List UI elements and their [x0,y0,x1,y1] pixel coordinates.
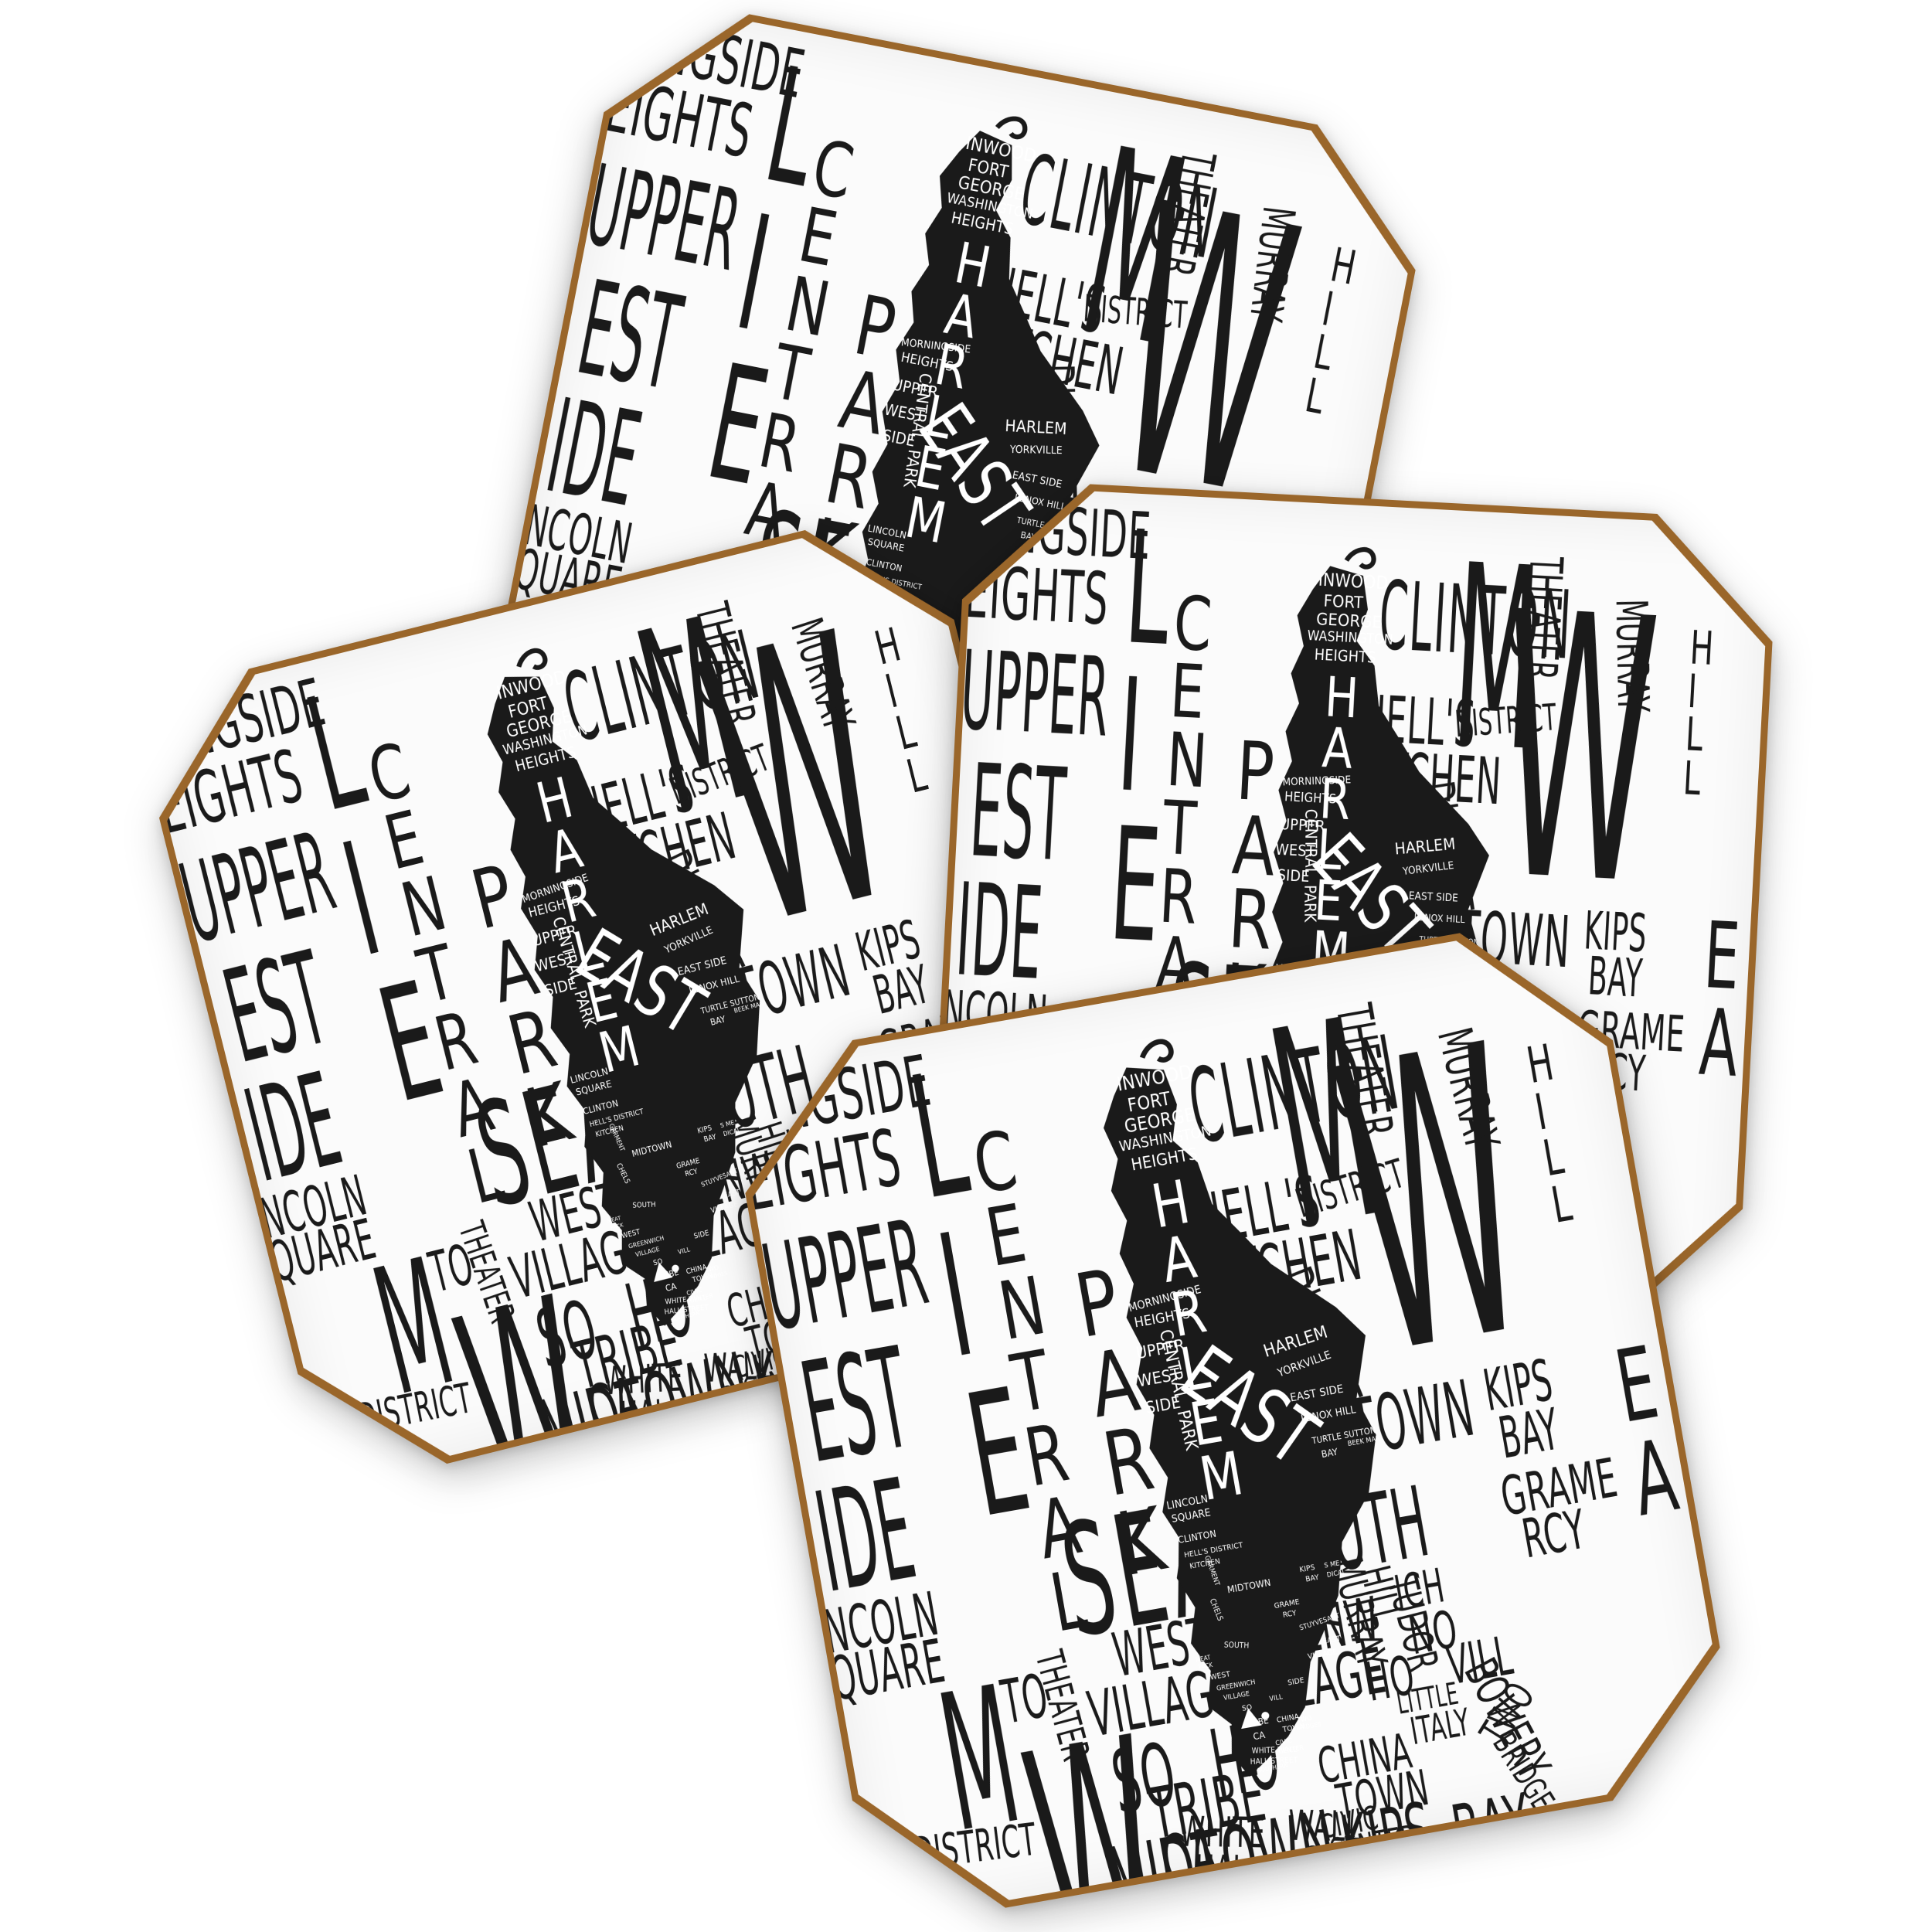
island-label: FORT [1323,593,1363,611]
island-label: BAY [1321,1447,1338,1459]
island-label: EAST SIDE [1409,891,1459,904]
neighborhood-label: MENT [921,1870,976,1923]
island-label: SOUTH [1224,1642,1250,1651]
neighborhood-label: SOUTHERN [1221,1876,1344,1913]
island-label: PARK [1302,885,1318,923]
coaster-set-photo: NGSIDEEIGHTSUPPERESTIDENCOLNQUARELIECENT… [0,0,1932,1932]
island-label: SOUTH [632,1202,655,1209]
island-label: MORNINGSIDE [1282,775,1351,788]
island-top-hook [996,116,1027,138]
island-top-hook [1140,1040,1172,1064]
island-label: PARK [901,449,923,489]
island-label: HARLEM [1394,835,1456,856]
neighborhood-label: MENT [367,1431,422,1485]
island-label: GEORGE [1316,611,1383,631]
island-label: CA [1253,1730,1266,1742]
island-label: HARLEM [1005,417,1067,437]
island-label: HEIGHTS [1314,648,1376,666]
neighborhood-label: SOUTHERN [645,1412,761,1454]
coaster-surface: NGSIDEEIGHTSUPPERESTIDENCOLNQUARELIECENT… [730,918,1735,1923]
cork-edge: NGSIDEEIGHTSUPPERESTIDENCOLNQUARELIECENT… [723,910,1743,1931]
island-label: CENTRAL [1303,809,1319,876]
island-label: YORKVILLE [1010,444,1063,456]
island-label: CA [665,1282,678,1294]
island-label: LENOX HILL [1413,912,1465,924]
manhattan-map-design: NGSIDEEIGHTSUPPERESTIDENCOLNQUARELIECENT… [730,918,1735,1923]
island-label: INWOOD [1318,572,1389,593]
island-label: HEIGHTS [1284,791,1337,806]
island-top-hook [516,648,547,672]
island-label: WHITE WALL [1252,1747,1298,1756]
neighborhood-label: STREET [1302,1841,1404,1889]
coaster-front-bottom: NGSIDEEIGHTSUPPERESTIDENCOLNQUARELIECENT… [723,910,1743,1931]
island-top-hook [1346,549,1374,567]
